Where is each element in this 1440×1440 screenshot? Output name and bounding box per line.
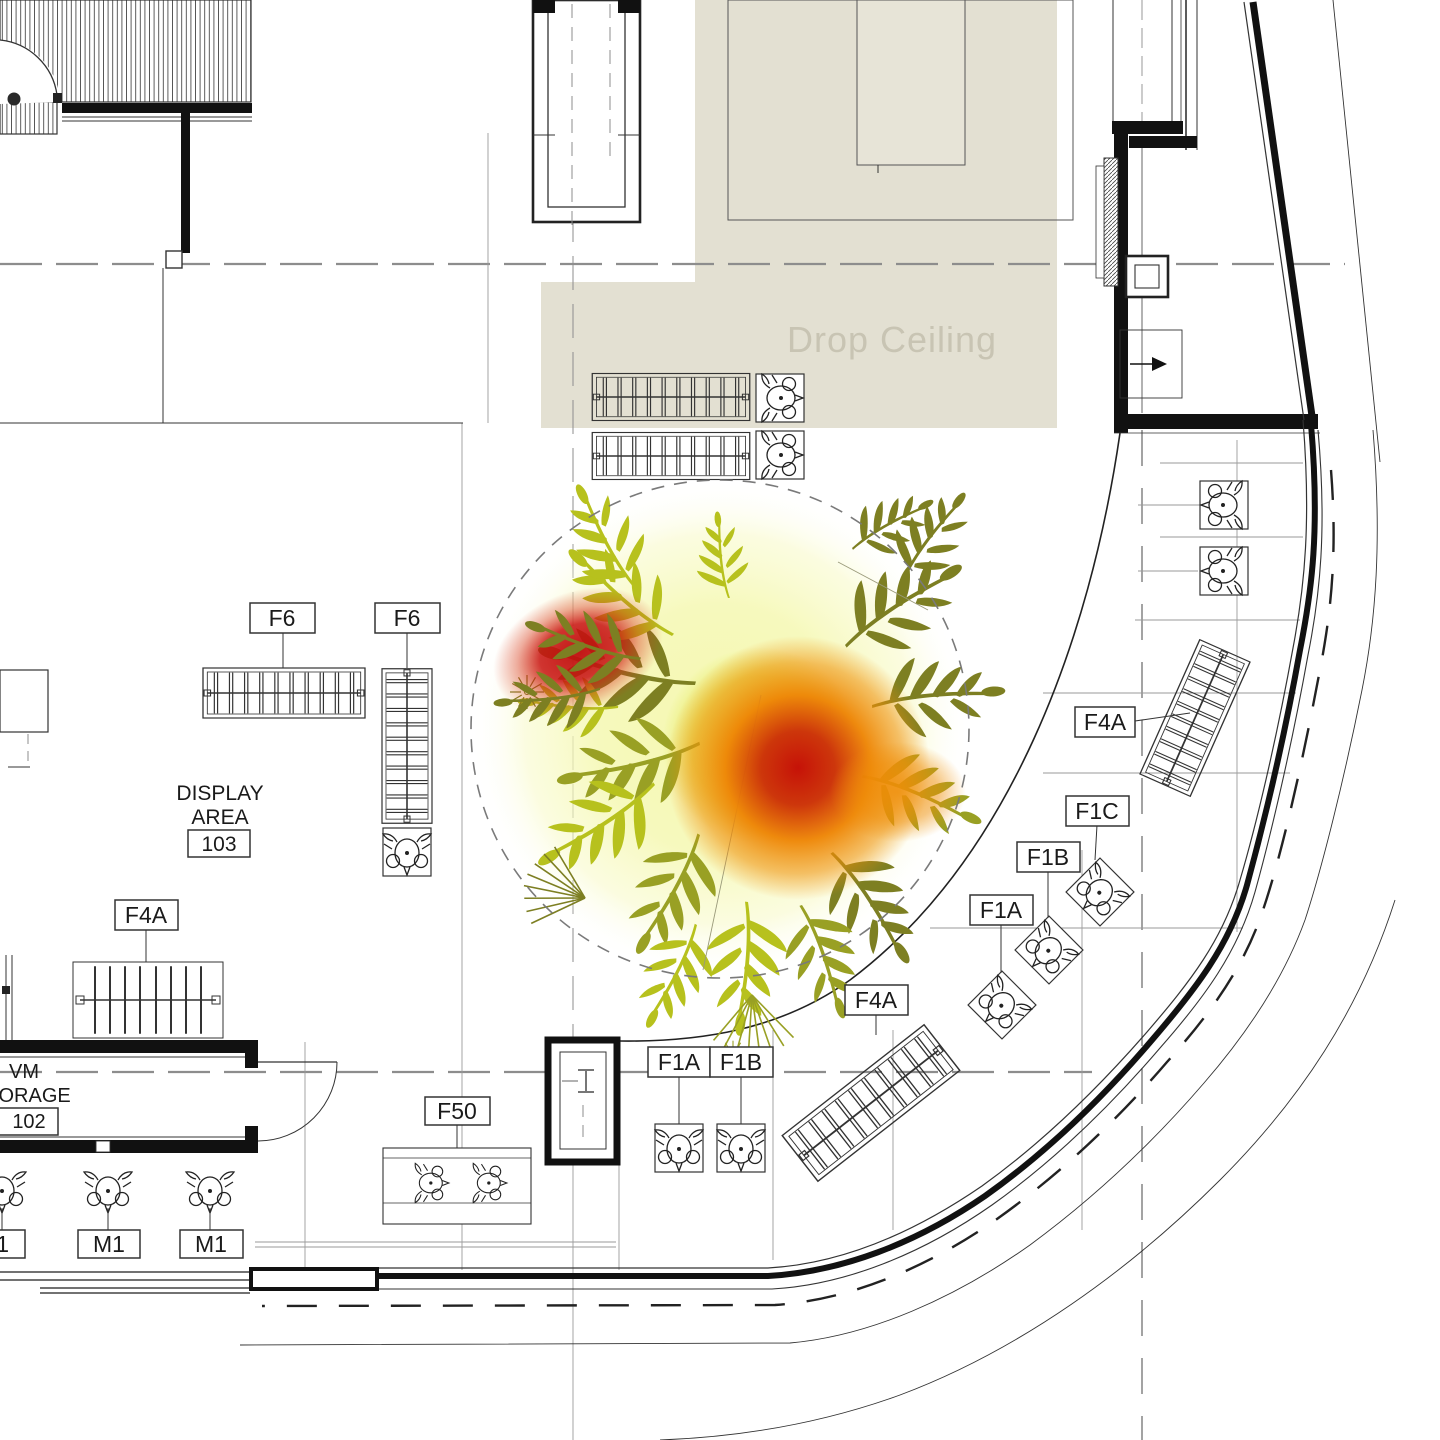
- display-area-line2: AREA: [191, 806, 248, 829]
- body-form-icon: [756, 431, 804, 479]
- left-edge-fixture: [0, 670, 48, 767]
- mannequin-icon: [0, 1172, 26, 1213]
- door-jamb: [166, 251, 182, 268]
- svg-text:F4A: F4A: [855, 987, 898, 1013]
- svg-text:F1B: F1B: [1027, 844, 1069, 870]
- vm-storage-line1: VM: [9, 1061, 39, 1083]
- body-form-icon: [756, 374, 804, 422]
- fixture-tag-f4a-bottom: F4A: [845, 985, 908, 1035]
- display-area-line1: DISPLAY: [176, 782, 263, 805]
- body-form-icon: [1015, 916, 1083, 984]
- open-rack-icon: [73, 962, 223, 1038]
- fixture-tag-f1b-pair: F1B: [710, 1047, 773, 1124]
- svg-text:F1C: F1C: [1075, 798, 1118, 824]
- fixture-tag-f6-left: F6: [250, 603, 315, 668]
- body-form-icon: [655, 1124, 703, 1172]
- structural-column: [548, 1040, 617, 1162]
- floorplan-canvas: Drop Ceiling: [0, 0, 1440, 1440]
- storefront-mullion: [251, 1269, 377, 1289]
- fixture-tag-f1a-right: F1A: [970, 895, 1033, 973]
- clothing-rack-icon: [382, 669, 432, 824]
- svg-text:F4A: F4A: [125, 902, 168, 928]
- display-area-number: 103: [201, 833, 236, 856]
- mannequin-icon: [186, 1172, 234, 1213]
- svg-text:F6: F6: [269, 605, 296, 631]
- hatched-area: [0, 0, 463, 423]
- fixture-tag-m1-left: M1: [0, 1208, 25, 1258]
- vm-storage-number: 102: [12, 1111, 45, 1133]
- svg-text:F1A: F1A: [658, 1049, 701, 1075]
- svg-text:M1: M1: [93, 1231, 125, 1257]
- clothing-rack-icon: [203, 668, 365, 718]
- svg-text:M1: M1: [195, 1231, 227, 1257]
- clothing-rack-icon: [592, 433, 750, 480]
- body-form-icon: [383, 828, 431, 876]
- svg-text:F1B: F1B: [720, 1049, 762, 1075]
- fixture-tag-f6-right: F6: [375, 603, 440, 668]
- direction-arrow-icon: [1130, 357, 1167, 371]
- body-form-icon: [1200, 481, 1248, 529]
- fixture-tag-f4a-left: F4A: [115, 900, 178, 962]
- door-swing: [258, 1062, 337, 1141]
- body-form-icon: [968, 971, 1036, 1039]
- vm-storage-line2: STORAGE: [0, 1085, 71, 1107]
- fixture-tag-f50: F50: [425, 1097, 490, 1148]
- display-table: [383, 1148, 531, 1224]
- svg-text:M1: M1: [0, 1231, 9, 1257]
- wall-insulation-hatch: [1104, 158, 1118, 286]
- drop-ceiling-label: Drop Ceiling: [787, 319, 997, 360]
- display-area-label: DISPLAY AREA 103: [176, 782, 263, 857]
- fixture-tag-m1-right: M1: [180, 1208, 243, 1258]
- vm-storage-room: VM STORAGE 102: [0, 955, 337, 1153]
- svg-text:F50: F50: [437, 1098, 477, 1124]
- body-form-icon: [1200, 547, 1248, 595]
- fixture-tag-m1-mid: M1: [78, 1208, 140, 1258]
- svg-text:F1A: F1A: [980, 897, 1023, 923]
- body-form-icon: [717, 1124, 765, 1172]
- column-marker: [8, 93, 21, 106]
- heatmap-overlay: [470, 468, 1008, 1071]
- escalator-shaft: [533, 0, 640, 225]
- fixture-tag-f1a-pair: F1A: [648, 1047, 710, 1124]
- svg-text:F6: F6: [394, 605, 421, 631]
- clothing-rack-icon: [782, 1025, 960, 1182]
- floorplan-svg: Drop Ceiling: [0, 0, 1440, 1440]
- mannequin-icon: [84, 1172, 132, 1213]
- svg-text:F4A: F4A: [1084, 709, 1127, 735]
